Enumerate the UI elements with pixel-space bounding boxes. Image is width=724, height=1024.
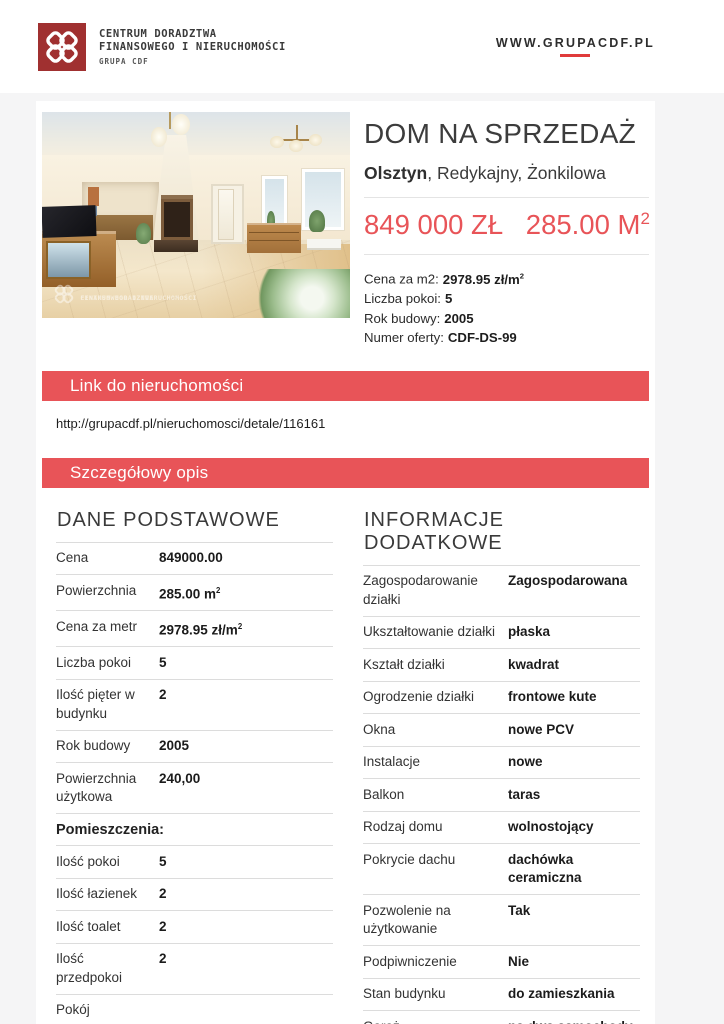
details-columns: DANE PODSTAWOWE Cena 849000.00 Powierzch…: [56, 509, 640, 1024]
logo-text: CENTRUM DORADZTWA FINANSOWEGO I NIERUCHO…: [99, 28, 286, 66]
row-value: Nie: [508, 953, 640, 972]
details-section-banner: Szczegółowy opis: [42, 458, 649, 488]
row-label: Stan budynku: [363, 985, 508, 1004]
row-label: Rodzaj domu: [363, 818, 508, 837]
row-value: 2005: [159, 737, 333, 756]
row-value: 2978.95 zł/m2: [159, 618, 333, 640]
page: CENTRUM DORADZTWA FINANSOWEGO I NIERUCHO…: [0, 0, 724, 1024]
table-row: Kształt działki kwadrat: [363, 649, 640, 682]
watermark-knot-icon: [54, 284, 74, 304]
row-label: Balkon: [363, 786, 508, 805]
row-value: 2: [159, 885, 333, 904]
logo-knot-icon: [38, 23, 86, 71]
row-value: nowe PCV: [508, 721, 640, 740]
row-label: Ilość przedpokoi: [56, 950, 159, 987]
row-value: 5: [159, 853, 333, 872]
row-label: Ilość pięter w budynku: [56, 686, 159, 723]
table-row: Zagospodarowanie działki Zagospodarowana: [363, 566, 640, 617]
website-url-text[interactable]: WWW.GRUPACDF.PL: [496, 36, 655, 50]
additional-info-column: INFORMACJE DODATKOWE Zagospodarowanie dz…: [363, 509, 640, 1024]
row-value: płaska: [508, 623, 640, 642]
row-label: Podpiwniczenie: [363, 953, 508, 972]
row-label: Okna: [363, 721, 508, 740]
table-row: Ilość pokoi 5: [56, 846, 333, 879]
row-label: Rok budowy: [56, 737, 159, 756]
row-value: dachówka ceramiczna: [508, 851, 640, 888]
additional-info-heading: INFORMACJE DODATKOWE: [363, 509, 640, 566]
row-label: Garaż: [363, 1018, 508, 1024]
row-value: Zagospodarowana: [508, 572, 640, 609]
table-row: Ogrodzenie działki frontowe kute: [363, 682, 640, 715]
photo-fireplace: [161, 199, 193, 240]
header: CENTRUM DORADZTWA FINANSOWEGO I NIERUCHO…: [0, 0, 724, 93]
table-subheading: Pomieszczenia:: [56, 814, 333, 846]
row-label: Cena: [56, 549, 159, 568]
row-label: Ogrodzenie działki: [363, 688, 508, 707]
table-row: Rok budowy 2005: [56, 731, 333, 764]
table-row: Instalacje nowe: [363, 747, 640, 780]
table-row: Balkon taras: [363, 779, 640, 812]
row-label: Ukształtowanie działki: [363, 623, 508, 642]
hero-section: CENTRUM DORADZTWA FINANSOWEGO I NIERUCHO…: [42, 112, 649, 348]
value-superscript: 2: [216, 586, 220, 595]
row-value: [159, 1001, 333, 1020]
row-label: Ilość pokoi: [56, 853, 159, 872]
key-fact-label: Numer oferty:: [364, 330, 444, 345]
photo-window-left: [262, 176, 287, 230]
row-value: 849000.00: [159, 549, 333, 568]
key-fact-line: Liczba pokoi:5: [364, 289, 649, 309]
basic-data-heading: DANE PODSTAWOWE: [56, 509, 333, 543]
row-label: Pokój: [56, 1001, 159, 1020]
row-value: 2: [159, 918, 333, 937]
area-superscript: 2: [640, 209, 649, 228]
hero-info: DOM NA SPRZEDAŻ Olsztyn, Redykajny, Żonk…: [362, 112, 649, 348]
logo-line-1: CENTRUM DORADZTWA: [99, 28, 286, 41]
table-row: Pokrycie dachu dachówka ceramiczna: [363, 844, 640, 895]
table-row: Ukształtowanie działki płaska: [363, 617, 640, 650]
photo-tv-cabinet: [42, 231, 116, 287]
table-row: Cena 849000.00: [56, 543, 333, 576]
table-row: Podpiwniczenie Nie: [363, 946, 640, 979]
table-row: Stan budynku do zamieszkania: [363, 979, 640, 1012]
photo-chandelier-left: [150, 112, 190, 147]
photo-radiator: [307, 239, 341, 250]
listing-card: CENTRUM DORADZTWA FINANSOWEGO I NIERUCHO…: [36, 101, 655, 1024]
key-fact-value: 2978.95 zł/m2: [443, 272, 524, 287]
price-line: 849 000 ZŁ 285.00 M2: [364, 198, 649, 255]
table-row: Okna nowe PCV: [363, 714, 640, 747]
row-label: Liczba pokoi: [56, 654, 159, 673]
table-row: Powierzchnia użytkowa 240,00: [56, 763, 333, 814]
row-value: 5: [159, 654, 333, 673]
key-fact-value: 2005: [444, 311, 473, 326]
row-value: 285.00 m2: [159, 582, 333, 604]
row-label: Instalacje: [363, 753, 508, 772]
row-label: Powierzchnia: [56, 582, 159, 604]
key-fact-value: 5: [445, 291, 452, 306]
row-value: Tak: [508, 902, 640, 939]
value-superscript: 2: [520, 271, 524, 280]
location-line: Olsztyn, Redykajny, Żonkilowa: [364, 163, 649, 198]
table-row: Liczba pokoi 5: [56, 647, 333, 680]
photo-window-right: [302, 169, 344, 231]
website-underline: [560, 54, 590, 57]
basic-data-column: DANE PODSTAWOWE Cena 849000.00 Powierzch…: [56, 509, 333, 1024]
table-row: Garaż na dwa samochody: [363, 1011, 640, 1024]
logo-line-3: GRUPA CDF: [99, 57, 286, 66]
link-section-banner: Link do nieruchomości: [42, 371, 649, 401]
row-value: kwadrat: [508, 656, 640, 675]
table-row: Cena za metr 2978.95 zł/m2: [56, 611, 333, 647]
photo-watermark: CENTRUM DORADZTWA FINANSOWEGO I NIERUCHO…: [54, 284, 80, 304]
area-value: 285.00 M2: [526, 209, 650, 240]
location-rest: , Redykajny, Żonkilowa: [427, 163, 606, 183]
table-row: Rodzaj domu wolnostojący: [363, 812, 640, 845]
table-row: Pokój: [56, 995, 333, 1024]
key-facts-list: Cena za m2:2978.95 zł/m2 Liczba pokoi:5 …: [364, 266, 649, 347]
row-label: Kształt działki: [363, 656, 508, 675]
photo-small-plant: [136, 223, 151, 244]
key-fact-label: Rok budowy:: [364, 311, 440, 326]
logo-line-2: FINANSOWEGO I NIERUCHOMOŚCI: [99, 41, 286, 54]
basic-data-table: Cena 849000.00 Powierzchnia 285.00 m2 Ce…: [56, 543, 333, 1024]
value-superscript: 2: [238, 622, 242, 631]
photo-hearth: [154, 240, 197, 252]
photo-chandelier-right: [270, 125, 322, 154]
row-label: Cena za metr: [56, 618, 159, 640]
row-label: Zagospodarowanie działki: [363, 572, 508, 609]
table-row: Ilość pięter w budynku 2: [56, 680, 333, 731]
row-value: 2: [159, 686, 333, 723]
row-value: 240,00: [159, 770, 333, 807]
photo-doorway: [211, 184, 243, 244]
photo-sideboard: [247, 223, 301, 253]
row-label: Ilość toalet: [56, 918, 159, 937]
table-row: Pozwolenie na użytkowanie Tak: [363, 895, 640, 946]
row-value: frontowe kute: [508, 688, 640, 707]
row-value: nowe: [508, 753, 640, 772]
row-value: na dwa samochody: [508, 1018, 640, 1024]
property-url: http://grupacdf.pl/nieruchomosci/detale/…: [56, 416, 649, 431]
key-fact-line: Cena za m2:2978.95 zł/m2: [364, 266, 649, 289]
photo-flower-arrangement: [251, 269, 350, 318]
price-value: 849 000 ZŁ: [364, 209, 503, 240]
row-label: Pozwolenie na użytkowanie: [363, 902, 508, 939]
location-city: Olsztyn: [364, 163, 427, 183]
row-value: 2: [159, 950, 333, 987]
row-value: do zamieszkania: [508, 985, 640, 1004]
key-fact-line: Numer oferty:CDF-DS-99: [364, 328, 649, 348]
website-link[interactable]: WWW.GRUPACDF.PL: [496, 36, 655, 57]
key-fact-label: Liczba pokoi:: [364, 291, 441, 306]
property-photo: CENTRUM DORADZTWA FINANSOWEGO I NIERUCHO…: [42, 112, 350, 318]
row-label: Powierzchnia użytkowa: [56, 770, 159, 807]
photo-wall-art: [88, 187, 99, 206]
table-row: Ilość przedpokoi 2: [56, 944, 333, 995]
table-row: Ilość toalet 2: [56, 911, 333, 944]
additional-info-table: Zagospodarowanie działki Zagospodarowana…: [363, 566, 640, 1024]
row-label: Ilość łazienek: [56, 885, 159, 904]
table-row: Ilość łazienek 2: [56, 879, 333, 912]
key-fact-line: Rok budowy:2005: [364, 309, 649, 329]
key-fact-label: Cena za m2:: [364, 272, 439, 287]
page-title: DOM NA SPRZEDAŻ: [364, 118, 649, 150]
company-logo: CENTRUM DORADZTWA FINANSOWEGO I NIERUCHO…: [38, 23, 286, 71]
row-value: wolnostojący: [508, 818, 640, 837]
photo-tv: [42, 205, 96, 238]
row-value: taras: [508, 786, 640, 805]
row-label: Pokrycie dachu: [363, 851, 508, 888]
key-fact-value: CDF-DS-99: [448, 330, 517, 345]
table-row: Powierzchnia 285.00 m2: [56, 575, 333, 611]
